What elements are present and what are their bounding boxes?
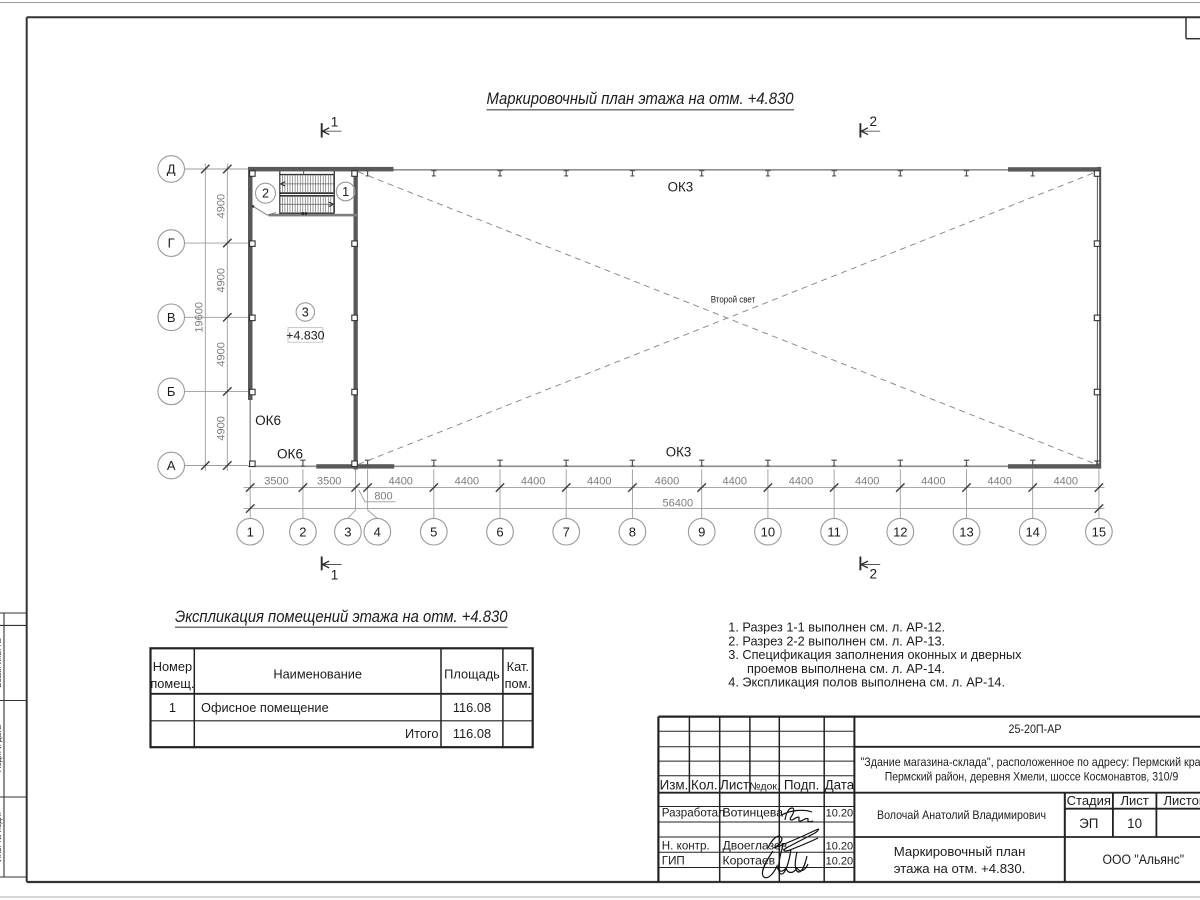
svg-text:ГИП: ГИП bbox=[662, 854, 685, 867]
svg-text:10.20: 10.20 bbox=[826, 840, 854, 852]
svg-text:116.08: 116.08 bbox=[453, 700, 491, 715]
svg-text:Пермский район, деревня Хмели,: Пермский район, деревня Хмели, шоссе Кос… bbox=[885, 770, 1179, 783]
svg-text:5: 5 bbox=[430, 524, 437, 539]
svg-text:4400: 4400 bbox=[789, 475, 813, 487]
svg-text:ОК3: ОК3 bbox=[666, 445, 692, 461]
svg-text:Б: Б bbox=[167, 384, 176, 399]
svg-text:Стадия: Стадия bbox=[1067, 793, 1111, 808]
svg-text:"Здание магазина-склада", расп: "Здание магазина-склада", расположенное … bbox=[861, 756, 1200, 769]
svg-text:Волочай Анатолий Владимирович: Волочай Анатолий Владимирович bbox=[877, 808, 1046, 822]
svg-text:Кол.: Кол. bbox=[691, 777, 718, 792]
svg-text:Лист: Лист bbox=[1120, 793, 1148, 808]
svg-text:1: 1 bbox=[342, 185, 349, 199]
svg-text:6: 6 bbox=[496, 524, 503, 539]
svg-text:проемов выполнена см. л. АР-14: проемов выполнена см. л. АР-14. bbox=[747, 662, 945, 676]
svg-text:Вотинцева: Вотинцева bbox=[723, 806, 784, 820]
svg-text:4. Экспликация полов выполнена: 4. Экспликация полов выполнена см. л. АР… bbox=[728, 676, 1005, 690]
svg-text:4400: 4400 bbox=[587, 475, 611, 487]
svg-text:4: 4 bbox=[374, 524, 381, 539]
svg-text:14: 14 bbox=[1025, 524, 1039, 539]
svg-text:3500: 3500 bbox=[317, 475, 341, 487]
svg-text:4900: 4900 bbox=[216, 342, 228, 366]
svg-text:2: 2 bbox=[869, 114, 877, 129]
svg-text:4600: 4600 bbox=[655, 475, 679, 487]
svg-text:Взам. инв. №: Взам. инв. № bbox=[0, 638, 3, 688]
svg-text:1: 1 bbox=[247, 524, 254, 539]
svg-text:11: 11 bbox=[827, 524, 841, 539]
svg-text:13: 13 bbox=[959, 524, 973, 539]
svg-text:3500: 3500 bbox=[264, 475, 288, 487]
svg-text:7: 7 bbox=[563, 524, 570, 539]
svg-text:Дата: Дата bbox=[825, 777, 855, 792]
svg-text:Изм.: Изм. bbox=[660, 777, 689, 792]
svg-text:ЭП: ЭП bbox=[1079, 816, 1098, 831]
svg-text:Итого: Итого bbox=[405, 726, 439, 741]
svg-text:10.20: 10.20 bbox=[826, 808, 854, 820]
svg-text:2: 2 bbox=[262, 187, 269, 201]
svg-text:помещ.: помещ. bbox=[150, 676, 194, 691]
svg-text:3: 3 bbox=[302, 305, 309, 319]
svg-text:ОК6: ОК6 bbox=[255, 413, 281, 429]
svg-text:пом.: пом. bbox=[505, 676, 531, 691]
svg-text:12: 12 bbox=[893, 524, 907, 539]
svg-text:Г: Г bbox=[168, 236, 175, 251]
svg-text:4400: 4400 bbox=[921, 475, 945, 487]
svg-text:3. Спецификация заполнения око: 3. Спецификация заполнения оконных и две… bbox=[728, 648, 1022, 662]
svg-text:Н. контр.: Н. контр. bbox=[662, 839, 710, 852]
svg-text:4400: 4400 bbox=[987, 475, 1011, 487]
svg-text:2: 2 bbox=[869, 567, 877, 582]
svg-text:10: 10 bbox=[1127, 816, 1142, 831]
svg-text:4400: 4400 bbox=[388, 475, 412, 487]
svg-text:ОК3: ОК3 bbox=[668, 179, 694, 195]
svg-text:8: 8 bbox=[629, 524, 636, 539]
svg-text:4900: 4900 bbox=[216, 268, 228, 292]
svg-text:1. Разрез 1-1 выполнен см. л.: 1. Разрез 1-1 выполнен см. л. АР-12. bbox=[728, 621, 945, 635]
svg-text:10.20: 10.20 bbox=[826, 855, 854, 867]
svg-text:Инв. № подл.: Инв. № подл. bbox=[0, 812, 3, 862]
svg-text:Площадь: Площадь bbox=[444, 667, 500, 682]
svg-text:Маркировочный план: Маркировочный план bbox=[894, 844, 1026, 859]
svg-text:ОК6: ОК6 bbox=[277, 447, 303, 463]
svg-text:19600: 19600 bbox=[194, 302, 206, 333]
svg-text:этажа на отм. +4.830.: этажа на отм. +4.830. bbox=[894, 861, 1026, 876]
svg-text:Листов: Листов bbox=[1164, 793, 1200, 808]
svg-text:В: В bbox=[167, 310, 176, 325]
svg-text:Офисное помещение: Офисное помещение bbox=[201, 700, 329, 715]
svg-text:1: 1 bbox=[331, 568, 339, 583]
svg-text:Подп.: Подп. bbox=[784, 777, 820, 792]
svg-text:800: 800 bbox=[374, 491, 392, 503]
svg-text:4900: 4900 bbox=[216, 194, 228, 218]
svg-text:1: 1 bbox=[331, 115, 339, 130]
svg-text:Маркировочный план этажа на от: Маркировочный план этажа на отм. +4.830 bbox=[487, 89, 795, 108]
svg-text:Экспликация помещений этажа на: Экспликация помещений этажа на отм. +4.8… bbox=[175, 608, 508, 626]
svg-text:116.08: 116.08 bbox=[453, 726, 491, 741]
svg-text:+4.830: +4.830 bbox=[286, 328, 324, 342]
svg-text:4400: 4400 bbox=[455, 475, 479, 487]
svg-text:№док.: №док. bbox=[749, 782, 779, 793]
svg-text:3: 3 bbox=[344, 524, 351, 539]
svg-text:2: 2 bbox=[299, 524, 306, 539]
svg-text:4400: 4400 bbox=[855, 475, 879, 487]
svg-text:Подп. и дата: Подп. и дата bbox=[0, 725, 3, 773]
svg-text:Лист: Лист bbox=[720, 777, 749, 792]
svg-text:А: А bbox=[167, 458, 176, 473]
svg-text:9: 9 bbox=[698, 524, 705, 539]
svg-text:ООО "Альянс": ООО "Альянс" bbox=[1103, 852, 1185, 867]
svg-text:25-20П-АР: 25-20П-АР bbox=[1009, 722, 1062, 736]
svg-text:Разработал: Разработал bbox=[662, 807, 725, 820]
svg-text:Наименование: Наименование bbox=[273, 667, 362, 682]
svg-text:4400: 4400 bbox=[1054, 475, 1078, 487]
svg-text:Д: Д bbox=[167, 162, 176, 177]
svg-text:Кат.: Кат. bbox=[507, 659, 529, 674]
svg-text:15: 15 bbox=[1092, 524, 1106, 539]
svg-text:4400: 4400 bbox=[521, 475, 545, 487]
svg-text:4400: 4400 bbox=[723, 475, 747, 487]
svg-text:4900: 4900 bbox=[216, 416, 228, 440]
svg-text:56400: 56400 bbox=[663, 497, 694, 509]
svg-text:Номер: Номер bbox=[153, 659, 192, 674]
svg-text:Второй свет: Второй свет bbox=[711, 294, 756, 305]
svg-text:10: 10 bbox=[761, 524, 775, 539]
svg-text:1: 1 bbox=[169, 700, 176, 715]
svg-text:2. Разрез 2-2 выполнен см. л.: 2. Разрез 2-2 выполнен см. л. АР-13. bbox=[728, 634, 945, 648]
